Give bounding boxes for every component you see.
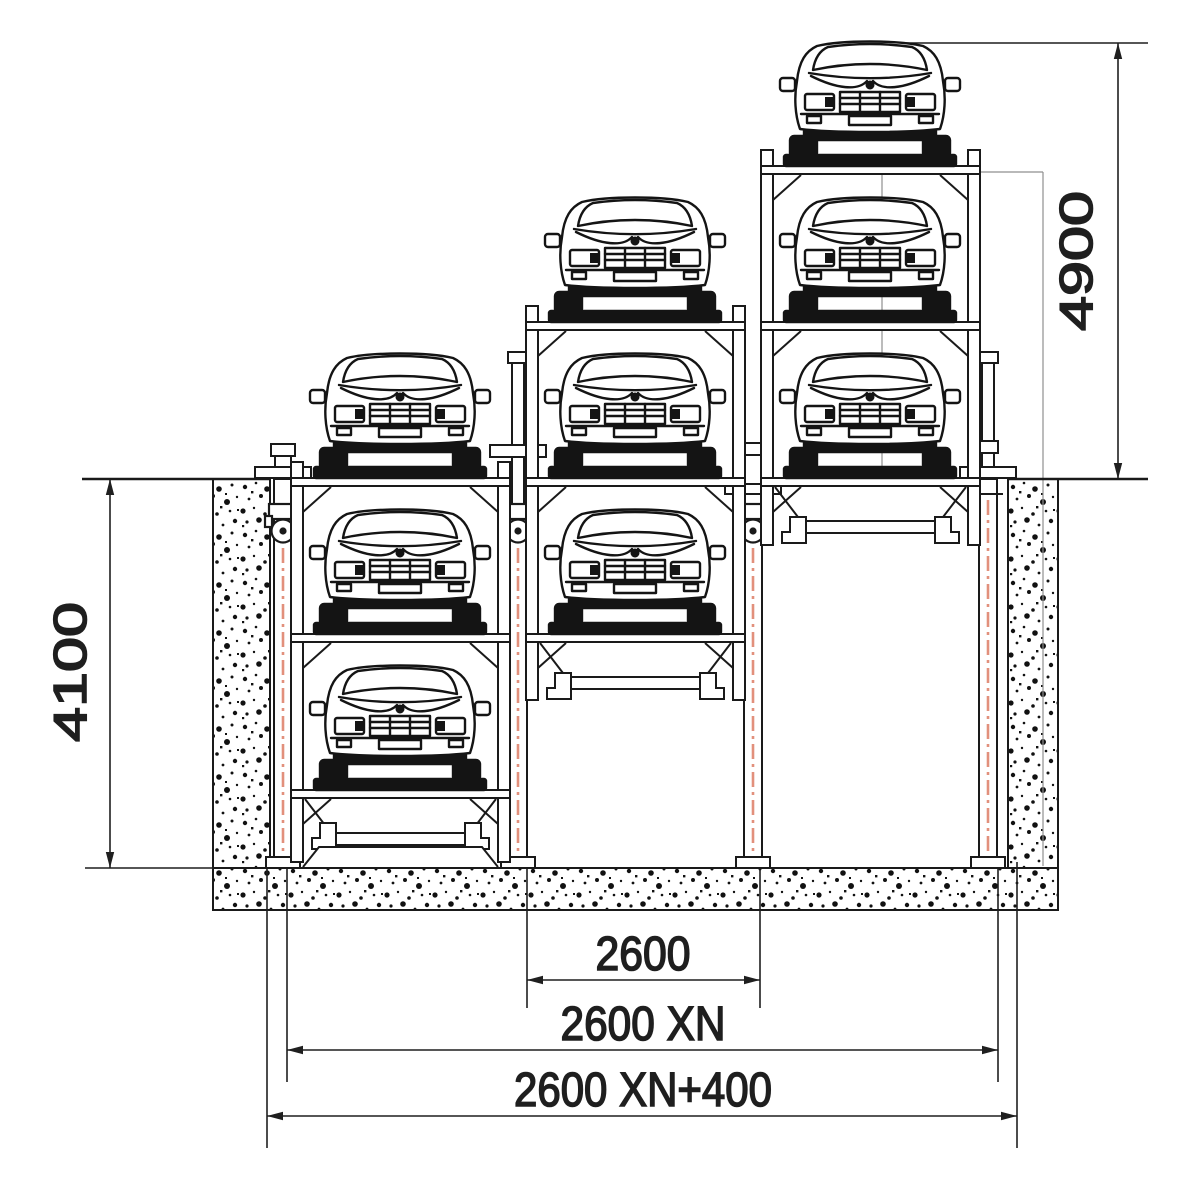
- car-front-icon: [310, 354, 490, 479]
- drawing-svg: 4100 4900 2600 2600 XN: [0, 0, 1200, 1200]
- pit-floor: [213, 868, 1058, 910]
- dim-label-bay-width: 2600: [596, 928, 691, 981]
- dimension-pit-depth: 4100: [44, 479, 213, 868]
- car-front-icon: [780, 42, 960, 167]
- bottom-apron: [775, 487, 966, 543]
- car-front-icon: [310, 666, 490, 791]
- parking-section-drawing: 4100 4900 2600 2600 XN: [0, 0, 1200, 1200]
- bottom-apron: [303, 799, 498, 867]
- bottom-apron: [540, 643, 731, 699]
- car-front-icon: [310, 510, 490, 635]
- pit-wall-left: [213, 479, 270, 868]
- lift-post: [291, 462, 303, 862]
- dim-label-total-height: 4900: [1050, 191, 1102, 331]
- dim-label-overall-width: 2600 XN+400: [514, 1064, 772, 1117]
- car-front-icon: [545, 510, 725, 635]
- car-front-icon: [545, 354, 725, 479]
- car-front-icon: [545, 198, 725, 323]
- dim-label-total-bays-width: 2600 XN: [561, 998, 726, 1051]
- pit-wall-right: [1008, 479, 1058, 868]
- car-front-icon: [780, 354, 960, 479]
- car-front-icon: [780, 198, 960, 323]
- lift-post: [498, 462, 510, 862]
- dim-label-pit-depth: 4100: [44, 602, 96, 742]
